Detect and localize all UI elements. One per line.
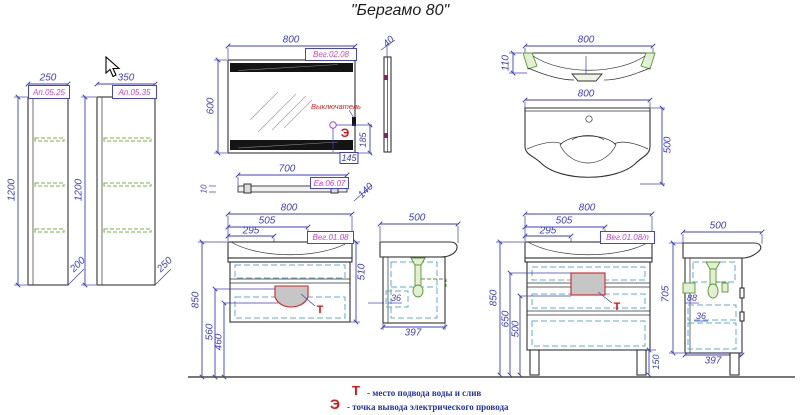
washbasin-front-outline — [509, 46, 655, 81]
drawing-title: "Бергамо 80" — [351, 2, 449, 20]
dim-vanity-floor-850: 850 — [489, 290, 500, 307]
tall-cabinet-350-outline — [81, 84, 171, 285]
dim-vanity-floor-side-36: 36 — [696, 311, 706, 321]
cabinet-wide-code: Ап.05.35 — [112, 85, 157, 99]
dim-cabinet-narrow-height: 1200 — [7, 179, 18, 201]
cabinet-narrow-code: Ап.05.25 — [28, 85, 70, 99]
dim-vanity-floor-500: 500 — [511, 321, 522, 338]
dim-vanity-floor-side-88: 88 — [687, 293, 697, 303]
dim-vanity-wall-side-36: 36 — [391, 293, 401, 303]
dim-vanity-wall-height: 510 — [357, 264, 368, 281]
dim-basin-front-width: 800 — [578, 35, 595, 46]
legend-electric-text: - точка вывода электрического провода — [347, 402, 509, 412]
dim-vanity-floor-505: 505 — [556, 216, 573, 227]
dim-vanity-wall-side-depth: 500 — [409, 213, 426, 224]
dim-vanity-wall-505: 505 — [259, 216, 276, 227]
washbasin-plan-outline — [525, 100, 665, 184]
dim-vanity-floor-side-397: 397 — [705, 356, 722, 367]
mirror-side-outline — [381, 40, 395, 152]
water-point-symbol-floor: Т — [614, 301, 621, 313]
mirror-code: Вег.02.08 — [305, 48, 357, 61]
mouse-cursor-icon — [103, 55, 123, 79]
dim-mirror-height: 600 — [206, 98, 217, 115]
dim-vanity-floor-side-height: 705 — [661, 286, 672, 303]
dim-basin-plan-width: 800 — [578, 89, 595, 100]
dim-vanity-floor-width: 800 — [579, 203, 596, 214]
dim-vanity-wall-side-397: 397 — [405, 328, 422, 339]
dim-basin-plan-depth: 500 — [663, 137, 674, 154]
dim-cabinet-wide-height: 1200 — [74, 179, 85, 201]
legend-electric-symbol: Э — [330, 396, 340, 412]
vanity-floor-side-outline — [669, 232, 762, 375]
vanity-wall-code: Вег.01.08 — [307, 231, 354, 244]
dim-vanity-wall-295: 295 — [243, 226, 260, 237]
shelf-code: Ев.06.07 — [310, 177, 349, 189]
dim-vanity-wall-460: 460 — [214, 334, 225, 351]
dim-cabinet-narrow-width: 250 — [40, 73, 57, 84]
dim-basin-front-height: 110 — [501, 55, 512, 71]
legend-water-symbol: Т — [352, 383, 360, 398]
vanity-wall-side-outline — [368, 224, 458, 330]
dim-shelf-width: 700 — [279, 164, 296, 175]
switch-label: Выключатель — [311, 102, 361, 111]
dim-vanity-wall-850: 850 — [191, 292, 202, 309]
dim-vanity-floor-leg: 150 — [651, 354, 661, 369]
dim-switch-vertical: 185 — [358, 132, 368, 147]
dim-vanity-floor-side-depth: 500 — [710, 221, 727, 232]
dim-mirror-width: 800 — [283, 35, 300, 46]
dim-shelf-thickness: 10 — [200, 185, 209, 194]
dim-vanity-floor-295: 295 — [540, 226, 557, 237]
electric-point-symbol: Э — [341, 126, 350, 140]
dim-vanity-wall-width: 800 — [281, 203, 298, 214]
vanity-floor-code: Вег.01.08/n — [600, 231, 655, 244]
water-point-symbol-wall: Т — [317, 304, 324, 316]
legend-water-text: - место подвода воды и слив — [367, 388, 481, 398]
technical-drawing-canvas: "Бергамо 80" 250 Ап.05.25 1200 200 350 А… — [0, 0, 800, 415]
dim-switch-horizontal: 145 — [339, 152, 358, 164]
